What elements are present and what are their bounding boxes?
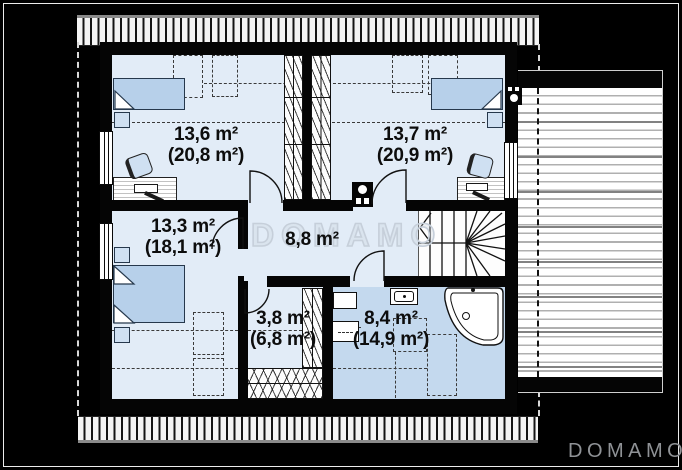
wall-interior xyxy=(267,276,350,287)
roof-eave-bottom xyxy=(78,416,538,443)
balcony-railing-bottom xyxy=(518,377,662,391)
room-area-total: (20,8 m²) xyxy=(168,145,244,166)
vent-block xyxy=(506,85,522,105)
balcony-roof-overhang-dashed xyxy=(537,88,539,377)
chimney-block xyxy=(352,182,373,207)
room-area-total: (14,9 m²) xyxy=(353,329,429,350)
closet-wardrobe-bottom xyxy=(245,368,323,399)
room-area: 13,3 m² xyxy=(145,216,221,237)
room-label-bathroom: 8,4 m² (14,9 m²) xyxy=(353,308,429,350)
nightstand xyxy=(114,247,130,263)
nightstand xyxy=(114,112,130,128)
toilet xyxy=(333,292,357,309)
bed-single-top-right xyxy=(431,78,503,110)
wall-interior xyxy=(283,200,353,211)
room-label-closet: 3,8 m² (6,8 m²) xyxy=(250,308,316,350)
watermark: DOMAMO xyxy=(251,217,442,254)
wall-interior xyxy=(406,200,505,211)
window-left-bottom xyxy=(99,223,113,280)
wall-interior xyxy=(323,287,333,399)
roof-edge-left-dashed xyxy=(77,42,79,416)
room-area-total: (18,1 m²) xyxy=(145,237,221,258)
wall-interior xyxy=(384,276,517,287)
brand-logo: DOMAMO xyxy=(568,440,682,463)
balcony-door-glazed xyxy=(504,142,518,199)
wall-exterior-top xyxy=(100,42,517,55)
balcony-railing-top xyxy=(518,71,662,88)
room-label-bedroom-top-left: 13,6 m² (20,8 m²) xyxy=(168,124,244,166)
room-label-bedroom-bottom-left: 13,3 m² (18,1 m²) xyxy=(145,216,221,258)
washbasin xyxy=(390,288,418,305)
roof-window-outline xyxy=(427,334,457,396)
nightstand xyxy=(114,327,130,343)
wall-interior xyxy=(238,281,248,399)
wall-between-wardrobes xyxy=(303,55,311,202)
room-label-bedroom-top-right: 13,7 m² (20,9 m²) xyxy=(377,124,453,166)
roof-edge-right-dashed-bottom xyxy=(538,391,540,416)
wardrobe-left-strip xyxy=(284,55,303,200)
bed-single-top-left xyxy=(113,78,185,110)
roof-height-line xyxy=(395,352,396,398)
room-area-total: (20,9 m²) xyxy=(377,145,453,166)
room-area: 8,8 m² xyxy=(285,229,339,250)
nightstand xyxy=(487,112,503,128)
balcony xyxy=(518,70,663,393)
room-area: 13,7 m² xyxy=(377,124,453,145)
wall-interior xyxy=(238,276,244,287)
wall-interior xyxy=(238,200,248,249)
roof-window-outline xyxy=(193,358,224,396)
roof-height-line xyxy=(333,368,427,369)
window-left-top xyxy=(99,131,113,185)
room-area: 8,4 m² xyxy=(353,308,429,329)
roof-window-outline xyxy=(392,55,423,93)
roof-edge-right-dashed-top xyxy=(538,44,540,72)
wall-interior xyxy=(111,200,248,211)
bed-double-bottom-left xyxy=(113,265,185,323)
room-area-total: (6,8 m²) xyxy=(250,329,316,350)
wall-exterior-bottom xyxy=(100,399,517,414)
wardrobe-right-strip xyxy=(311,55,331,200)
room-area: 13,6 m² xyxy=(168,124,244,145)
roof-window-outline xyxy=(212,55,238,97)
room-label-hallway: 8,8 m² xyxy=(285,229,339,250)
room-area: 3,8 m² xyxy=(250,308,316,329)
balcony-deck xyxy=(518,88,662,377)
floor-plan: DOMAMO 13,6 m² (20,8 m²) 13,7 m² (20,9 m… xyxy=(0,0,682,470)
roof-window-outline xyxy=(193,312,224,355)
